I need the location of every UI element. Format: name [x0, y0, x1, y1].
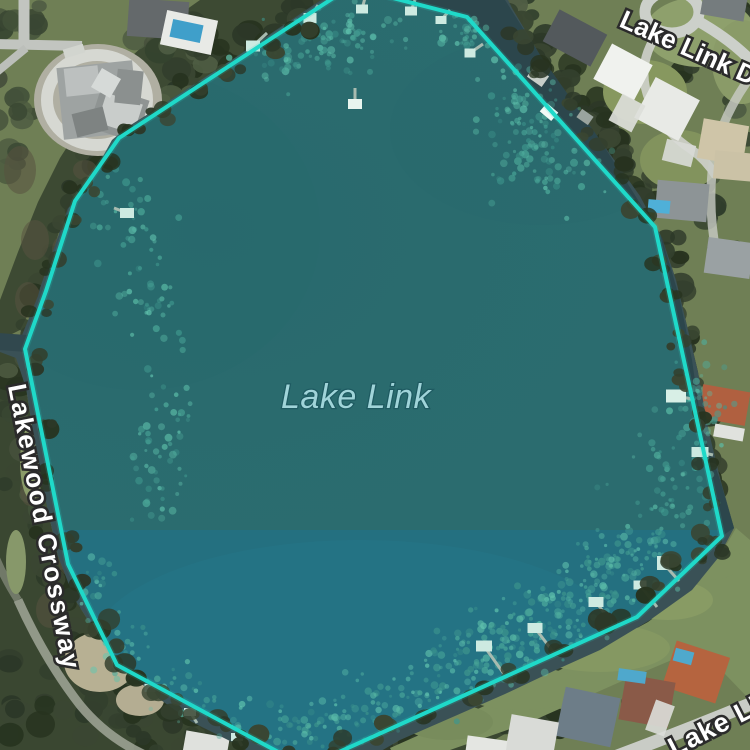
svg-text:Lake Link: Lake Link: [281, 378, 433, 416]
